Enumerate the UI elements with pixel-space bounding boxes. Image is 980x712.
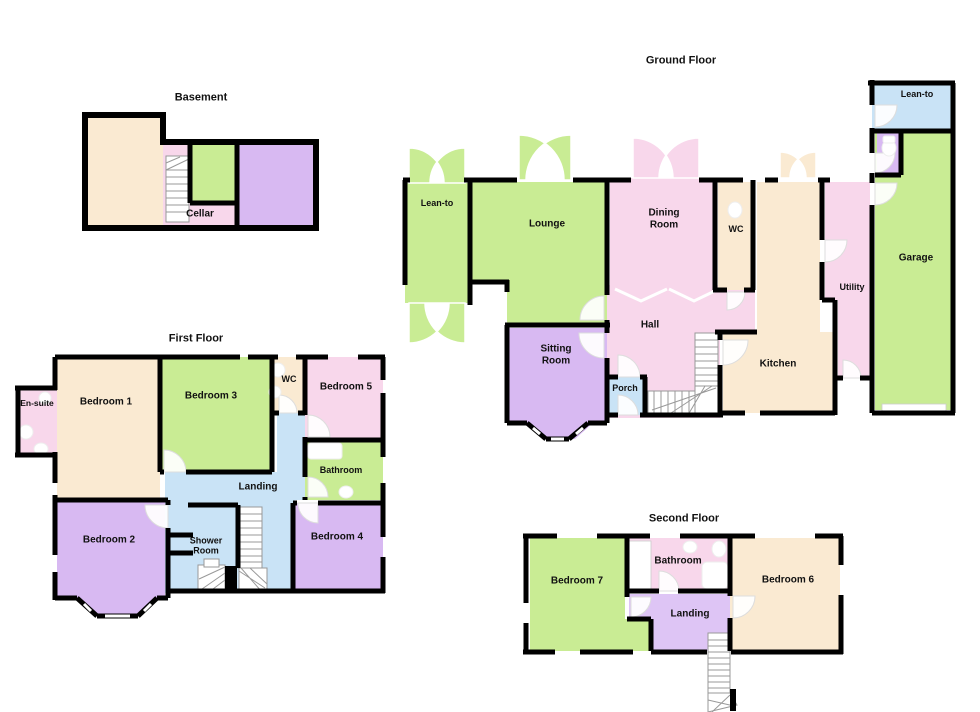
french-doors-icon [633,138,699,178]
basement-title: Basement [175,92,228,105]
room-label-bedroom4: Bedroom 4 [311,531,363,543]
room-basement-right [237,142,316,228]
room-bedroom1 [57,357,160,500]
room-label-hall: Hall [641,319,659,331]
room-label-ground-wc: WC [729,224,744,234]
room-label-dining-room: Dining Room [639,208,689,231]
toilet-icon [883,136,895,143]
room-label-lean-to-left: Lean-to [421,198,454,208]
toilet-icon [19,425,33,439]
ground-floor-plan [403,80,955,439]
french-doors-icon [780,152,816,178]
bath-icon [308,443,342,459]
floorplan-canvas: Basement Cellar First Floor En-suite Bed… [0,0,980,712]
room-label-lean-to-right: Lean-to [901,89,934,99]
room-label-cellar: Cellar [186,208,214,220]
bath-icon [702,562,728,589]
room-label-second-landing: Landing [671,608,710,620]
first-floor-title: First Floor [169,333,223,346]
room-label-second-bathroom: Bathroom [654,555,701,567]
french-doors-icon [409,148,465,183]
room-basement-green [190,142,235,202]
french-doors-icon [409,303,465,343]
sink-icon [339,486,353,498]
toilet-icon [728,202,742,218]
room-label-bedroom2: Bedroom 2 [83,534,135,546]
room-label-bedroom1: Bedroom 1 [80,396,132,408]
room-dining-room [610,178,715,290]
room-label-porch: Porch [612,383,638,393]
stair-wall-stub [730,689,736,711]
room-label-bedroom5: Bedroom 5 [320,381,372,393]
room-label-bedroom6: Bedroom 6 [762,574,814,586]
room-label-garage: Garage [899,252,933,264]
room-label-sitting-room: Sitting Room [531,344,581,367]
room-label-first-landing: Landing [239,481,278,493]
room-bedroom6 [730,538,840,651]
room-label-shower-room: Shower Room [181,536,231,557]
cupboard-void [629,541,651,589]
room-ground-wc [718,182,753,290]
room-label-first-wc: WC [282,374,297,384]
room-label-lounge: Lounge [529,218,565,230]
room-label-utility: Utility [839,282,864,292]
room-label-kitchen: Kitchen [760,358,797,370]
room-label-first-bathroom: Bathroom [320,465,363,475]
room-basement-left [85,115,163,228]
floorplan-drawing [0,0,980,712]
sink-icon [683,541,697,553]
ground-floor-title: Ground Floor [646,55,716,68]
room-rear-lobby [757,182,820,332]
room-label-bedroom3: Bedroom 3 [185,390,237,402]
second-floor-title: Second Floor [649,513,719,526]
toilet-icon [712,541,726,557]
room-label-ensuite: En-suite [20,399,54,409]
room-label-bedroom7: Bedroom 7 [551,575,603,587]
french-doors-icon [519,135,571,180]
